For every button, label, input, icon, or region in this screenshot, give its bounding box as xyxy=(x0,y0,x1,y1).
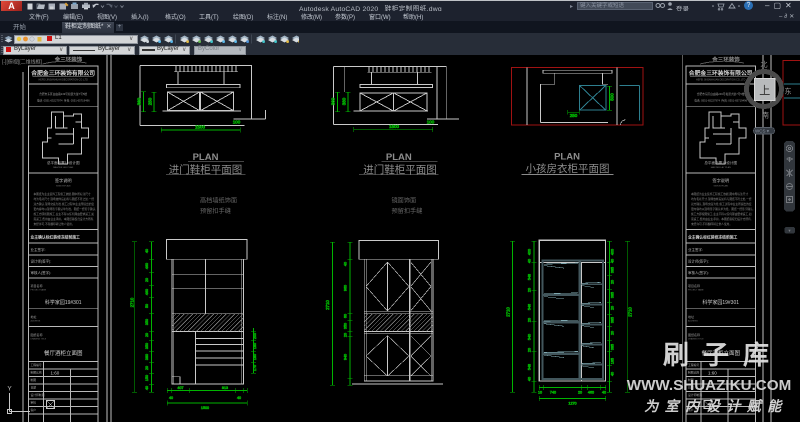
svg-text:385: 385 xyxy=(611,317,615,323)
svg-text:380: 380 xyxy=(342,97,347,105)
svg-text:385: 385 xyxy=(611,344,615,350)
svg-text:185: 185 xyxy=(611,358,615,364)
svg-text:20: 20 xyxy=(578,391,582,395)
svg-text:1500: 1500 xyxy=(201,406,209,410)
svg-text:WWW.SHUAZIKU.COM: WWW.SHUAZIKU.COM xyxy=(627,377,792,394)
svg-text:20: 20 xyxy=(344,333,348,337)
svg-text:2710: 2710 xyxy=(506,307,511,317)
svg-text:400: 400 xyxy=(528,249,532,255)
svg-text:东: 东 xyxy=(785,87,792,96)
svg-text:40: 40 xyxy=(344,262,348,266)
svg-text:PLAN: PLAN xyxy=(193,152,219,163)
svg-text:548: 548 xyxy=(528,364,532,370)
svg-text:40: 40 xyxy=(169,396,173,400)
svg-text:1500: 1500 xyxy=(195,125,206,130)
svg-text:20: 20 xyxy=(611,331,615,335)
svg-text:50: 50 xyxy=(145,304,149,308)
svg-text:100: 100 xyxy=(427,120,435,125)
svg-text:460: 460 xyxy=(588,391,594,395)
svg-text:小孩房衣柜平面图: 小孩房衣柜平面图 xyxy=(526,162,610,175)
svg-text:40: 40 xyxy=(145,249,149,253)
svg-text:40: 40 xyxy=(611,259,615,263)
svg-text:385: 385 xyxy=(611,267,615,273)
svg-text:200: 200 xyxy=(253,333,257,339)
svg-text:刷子库: 刷子库 xyxy=(663,340,783,370)
svg-text:预留扣手缝: 预留扣手缝 xyxy=(392,207,423,215)
svg-text:40: 40 xyxy=(611,372,615,376)
svg-text:南: 南 xyxy=(762,111,769,120)
svg-text:813: 813 xyxy=(222,386,228,390)
svg-text:740: 740 xyxy=(550,391,556,395)
svg-text:2710: 2710 xyxy=(325,300,330,310)
svg-text:400: 400 xyxy=(611,249,615,255)
svg-text:40: 40 xyxy=(528,259,532,263)
svg-text:[-][俯视][二维线框]: [-][俯视][二维线框] xyxy=(2,59,43,66)
svg-text:460: 460 xyxy=(145,263,149,269)
svg-text:180: 180 xyxy=(253,354,257,360)
svg-text:250: 250 xyxy=(148,97,153,105)
svg-text:PLAN: PLAN xyxy=(554,152,580,163)
svg-text:40: 40 xyxy=(237,396,241,400)
svg-text:385: 385 xyxy=(611,292,615,298)
svg-text:为室内设计赋能: 为室内设计赋能 xyxy=(644,398,788,414)
svg-text:940: 940 xyxy=(344,354,348,360)
svg-text:40: 40 xyxy=(145,386,149,390)
svg-text:镜面饰面: 镜面饰面 xyxy=(392,197,417,205)
svg-text:高档墙纸饰面: 高档墙纸饰面 xyxy=(200,197,237,205)
svg-text:1270: 1270 xyxy=(568,402,576,406)
svg-text:上: 上 xyxy=(759,84,770,97)
svg-text:1500: 1500 xyxy=(389,124,400,129)
svg-text:546: 546 xyxy=(528,304,532,310)
svg-text:20: 20 xyxy=(611,306,615,310)
svg-text:北: 北 xyxy=(761,61,768,69)
svg-text:170: 170 xyxy=(253,365,257,371)
svg-text:20: 20 xyxy=(145,333,149,337)
svg-text:460: 460 xyxy=(145,289,149,295)
svg-text:2710: 2710 xyxy=(628,307,633,317)
svg-text:350: 350 xyxy=(344,323,348,329)
svg-text:350: 350 xyxy=(145,319,149,325)
svg-text:40: 40 xyxy=(528,377,532,381)
svg-text:360: 360 xyxy=(331,97,336,105)
svg-text:350: 350 xyxy=(145,343,149,349)
svg-text:20: 20 xyxy=(611,280,615,284)
svg-text:20: 20 xyxy=(145,278,149,282)
svg-text:Y: Y xyxy=(7,386,12,393)
svg-text:500: 500 xyxy=(610,93,615,101)
svg-text:10: 10 xyxy=(538,391,542,395)
svg-text:WCS ▾: WCS ▾ xyxy=(755,129,770,134)
svg-text:PLAN: PLAN xyxy=(386,152,412,163)
svg-text:进门鞋柜平面图: 进门鞋柜平面图 xyxy=(363,163,437,176)
svg-text:960: 960 xyxy=(344,285,348,291)
svg-text:250: 250 xyxy=(570,113,578,118)
svg-text:2710: 2710 xyxy=(130,297,135,307)
svg-text:40: 40 xyxy=(602,391,606,395)
svg-text:进门鞋柜平面图: 进门鞋柜平面图 xyxy=(169,163,243,176)
svg-text:20: 20 xyxy=(528,318,532,322)
svg-text:150: 150 xyxy=(145,375,149,381)
svg-text:180: 180 xyxy=(253,343,257,349)
svg-text:预留扣手缝: 预留扣手缝 xyxy=(200,207,231,215)
svg-text:548: 548 xyxy=(528,274,532,280)
svg-text:100: 100 xyxy=(233,120,241,125)
svg-text:407: 407 xyxy=(177,386,183,390)
svg-text:380: 380 xyxy=(145,354,149,360)
svg-text:20: 20 xyxy=(528,288,532,292)
svg-text:360: 360 xyxy=(137,97,142,105)
svg-text:20: 20 xyxy=(528,348,532,352)
svg-text:20: 20 xyxy=(145,366,149,370)
svg-text:540: 540 xyxy=(528,334,532,340)
svg-text:60: 60 xyxy=(344,314,348,318)
